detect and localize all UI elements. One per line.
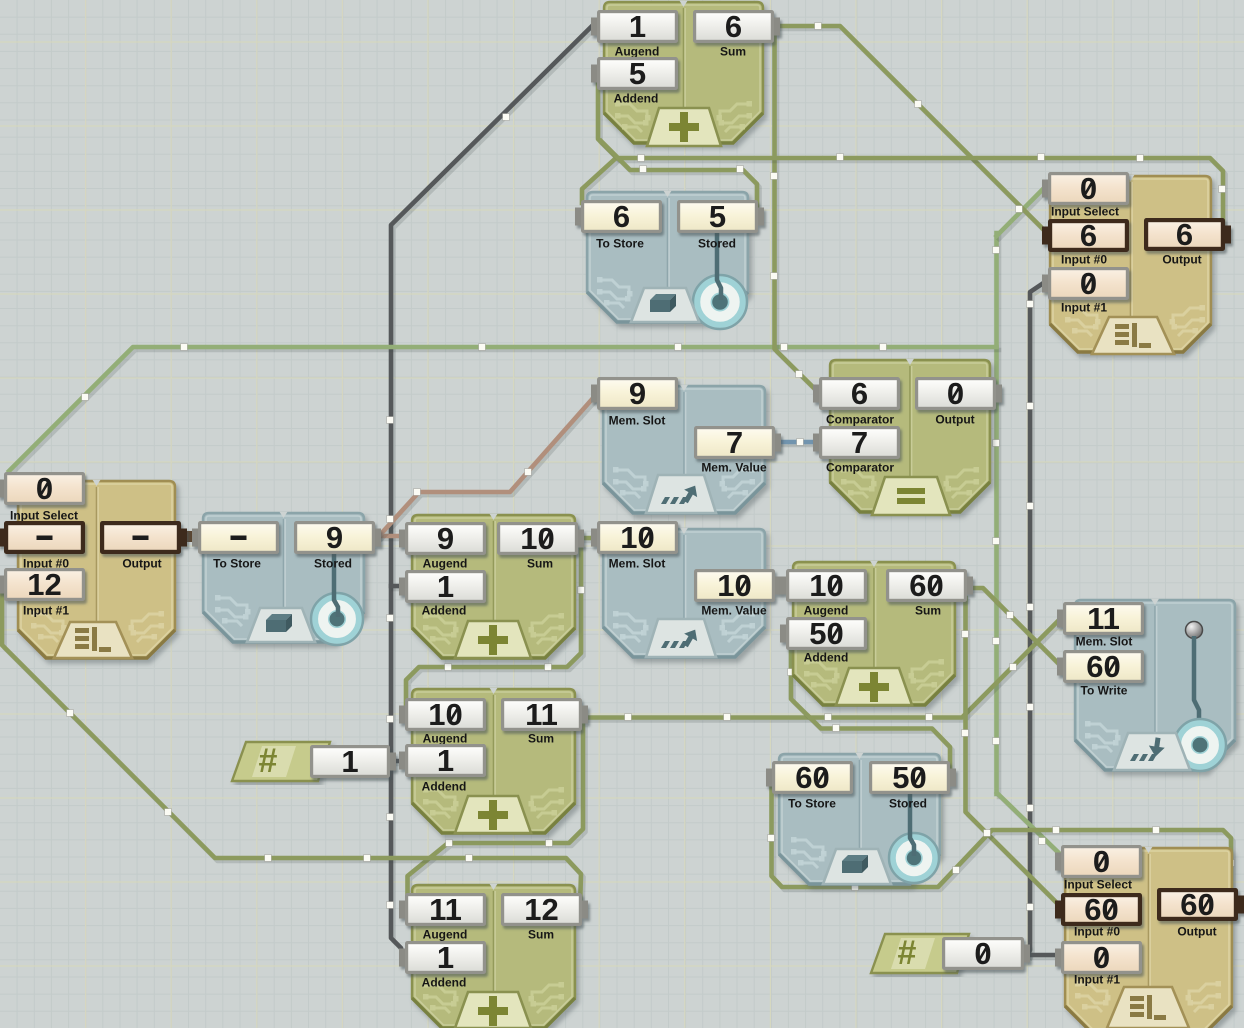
svg-text:10: 10 — [428, 697, 462, 732]
svg-text:Input #1: Input #1 — [1074, 973, 1120, 987]
svg-text:1: 1 — [437, 940, 454, 975]
svg-text:1: 1 — [437, 569, 454, 604]
svg-text:6: 6 — [1080, 218, 1097, 253]
svg-text:Sum: Sum — [527, 557, 553, 571]
svg-text:#: # — [898, 934, 917, 972]
svg-text:6: 6 — [851, 376, 868, 411]
svg-text:1: 1 — [437, 743, 454, 778]
svg-text:7: 7 — [726, 425, 743, 460]
svg-text:50: 50 — [892, 760, 926, 795]
svg-text:Input #1: Input #1 — [23, 604, 69, 618]
svg-text:1: 1 — [629, 9, 646, 44]
svg-text:Sum: Sum — [528, 732, 554, 746]
svg-text:Mem. Slot: Mem. Slot — [1076, 635, 1133, 649]
svg-text:5: 5 — [629, 56, 646, 91]
svg-text:11: 11 — [429, 892, 462, 927]
svg-text:Stored: Stored — [889, 797, 927, 811]
svg-text:Addend: Addend — [422, 976, 467, 990]
svg-text:Mem. Slot: Mem. Slot — [609, 557, 666, 571]
svg-text:12: 12 — [27, 567, 61, 602]
svg-text:6: 6 — [1176, 217, 1193, 252]
svg-text:Output: Output — [935, 413, 974, 427]
svg-text:9: 9 — [629, 376, 646, 411]
svg-text:Stored: Stored — [314, 557, 352, 571]
svg-text:Input Select: Input Select — [1051, 205, 1119, 219]
svg-text:60: 60 — [795, 760, 829, 795]
svg-text:Mem. Slot: Mem. Slot — [609, 414, 666, 428]
svg-text:Sum: Sum — [528, 928, 554, 942]
svg-text:Input Select: Input Select — [1064, 878, 1132, 892]
svg-text:1: 1 — [341, 744, 358, 779]
svg-text:5: 5 — [709, 199, 726, 234]
svg-text:Addend: Addend — [614, 92, 659, 106]
svg-text:7: 7 — [851, 425, 868, 460]
svg-text:#: # — [259, 742, 278, 780]
svg-text:Output: Output — [1162, 253, 1201, 267]
svg-text:Input #1: Input #1 — [1061, 301, 1107, 315]
svg-text:Input #0: Input #0 — [1061, 253, 1107, 267]
svg-text:60: 60 — [1084, 892, 1118, 927]
svg-text:Addend: Addend — [422, 780, 467, 794]
svg-text:60: 60 — [1086, 649, 1120, 684]
svg-text:10: 10 — [620, 520, 654, 555]
svg-text:9: 9 — [326, 520, 343, 555]
svg-text:To Store: To Store — [788, 797, 836, 811]
svg-text:Sum: Sum — [720, 45, 746, 59]
svg-text:10: 10 — [717, 568, 751, 603]
svg-text:Input #0: Input #0 — [1074, 925, 1120, 939]
svg-text:10: 10 — [809, 568, 843, 603]
svg-text:Addend: Addend — [804, 651, 849, 665]
svg-text:11: 11 — [525, 697, 558, 732]
svg-text:9: 9 — [437, 521, 454, 556]
svg-text:Addend: Addend — [422, 604, 467, 618]
svg-text:Mem. Value: Mem. Value — [701, 461, 767, 475]
svg-text:50: 50 — [809, 616, 843, 651]
svg-text:To Store: To Store — [213, 557, 261, 571]
svg-text:6: 6 — [725, 9, 742, 44]
svg-text:Output: Output — [122, 557, 161, 571]
svg-text:Sum: Sum — [915, 604, 941, 618]
svg-text:Input Select: Input Select — [10, 509, 78, 523]
svg-text:6: 6 — [613, 199, 630, 234]
svg-text:Comparator: Comparator — [826, 461, 894, 475]
svg-text:To Write: To Write — [1081, 684, 1128, 698]
svg-text:Output: Output — [1177, 925, 1216, 939]
svg-text:12: 12 — [524, 892, 558, 927]
svg-text:60: 60 — [1180, 887, 1214, 922]
svg-text:Mem. Value: Mem. Value — [701, 604, 767, 618]
svg-text:To Store: To Store — [596, 237, 644, 251]
svg-text:11: 11 — [1087, 601, 1120, 636]
svg-text:60: 60 — [909, 568, 943, 603]
svg-text:10: 10 — [520, 521, 554, 556]
svg-text:Stored: Stored — [698, 237, 736, 251]
